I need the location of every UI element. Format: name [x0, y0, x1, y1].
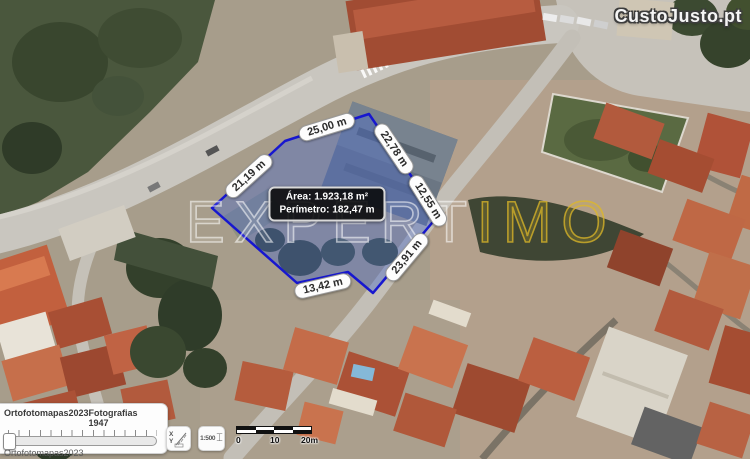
scale-label-20m: 20m — [301, 435, 318, 445]
parcel-info-tooltip: Área: 1.923,18 m² Perímetro: 182,47 m — [268, 187, 385, 222]
layer-option-ortofotomapas2023[interactable]: Ortofotomapas2023 — [4, 408, 89, 428]
perimeter-value: Perímetro: 182,47 m — [279, 204, 374, 217]
timeline-slider-track[interactable] — [8, 436, 157, 446]
ibeam-cursor-icon: ⌶ — [216, 433, 223, 444]
map-viewer: EXPERTIMO CustoJusto.pt 25,00 m22,78 m12… — [0, 0, 750, 459]
layer-option-fotografias1947[interactable]: Fotografias 1947 — [89, 408, 159, 428]
selected-layer-label: Ortofotomapas2023 — [2, 446, 161, 458]
svg-text:Y: Y — [169, 438, 174, 445]
scale-ratio-value: 1:500 — [200, 435, 215, 442]
scale-bar: 0 10 20m — [236, 426, 312, 445]
xy-axes-icon: X Y — [169, 429, 188, 448]
layers-panel: Ortofotomapas2023 Fotografias 1947 Ortof… — [0, 403, 168, 454]
scale-label-0: 0 — [236, 435, 241, 445]
coordinates-tool-button[interactable]: X Y — [166, 426, 191, 451]
timeline-slider-handle[interactable] — [3, 433, 16, 450]
satellite-map-canvas[interactable] — [0, 0, 750, 459]
custojusto-watermark: CustoJusto.pt — [615, 6, 743, 27]
svg-text:X: X — [169, 431, 174, 438]
scale-label-10: 10 — [270, 435, 279, 445]
scale-ratio-button[interactable]: 1:500 ⌶ — [198, 426, 225, 451]
scale-bar-segments — [236, 426, 312, 434]
area-value: Área: 1.923,18 m² — [279, 192, 374, 205]
